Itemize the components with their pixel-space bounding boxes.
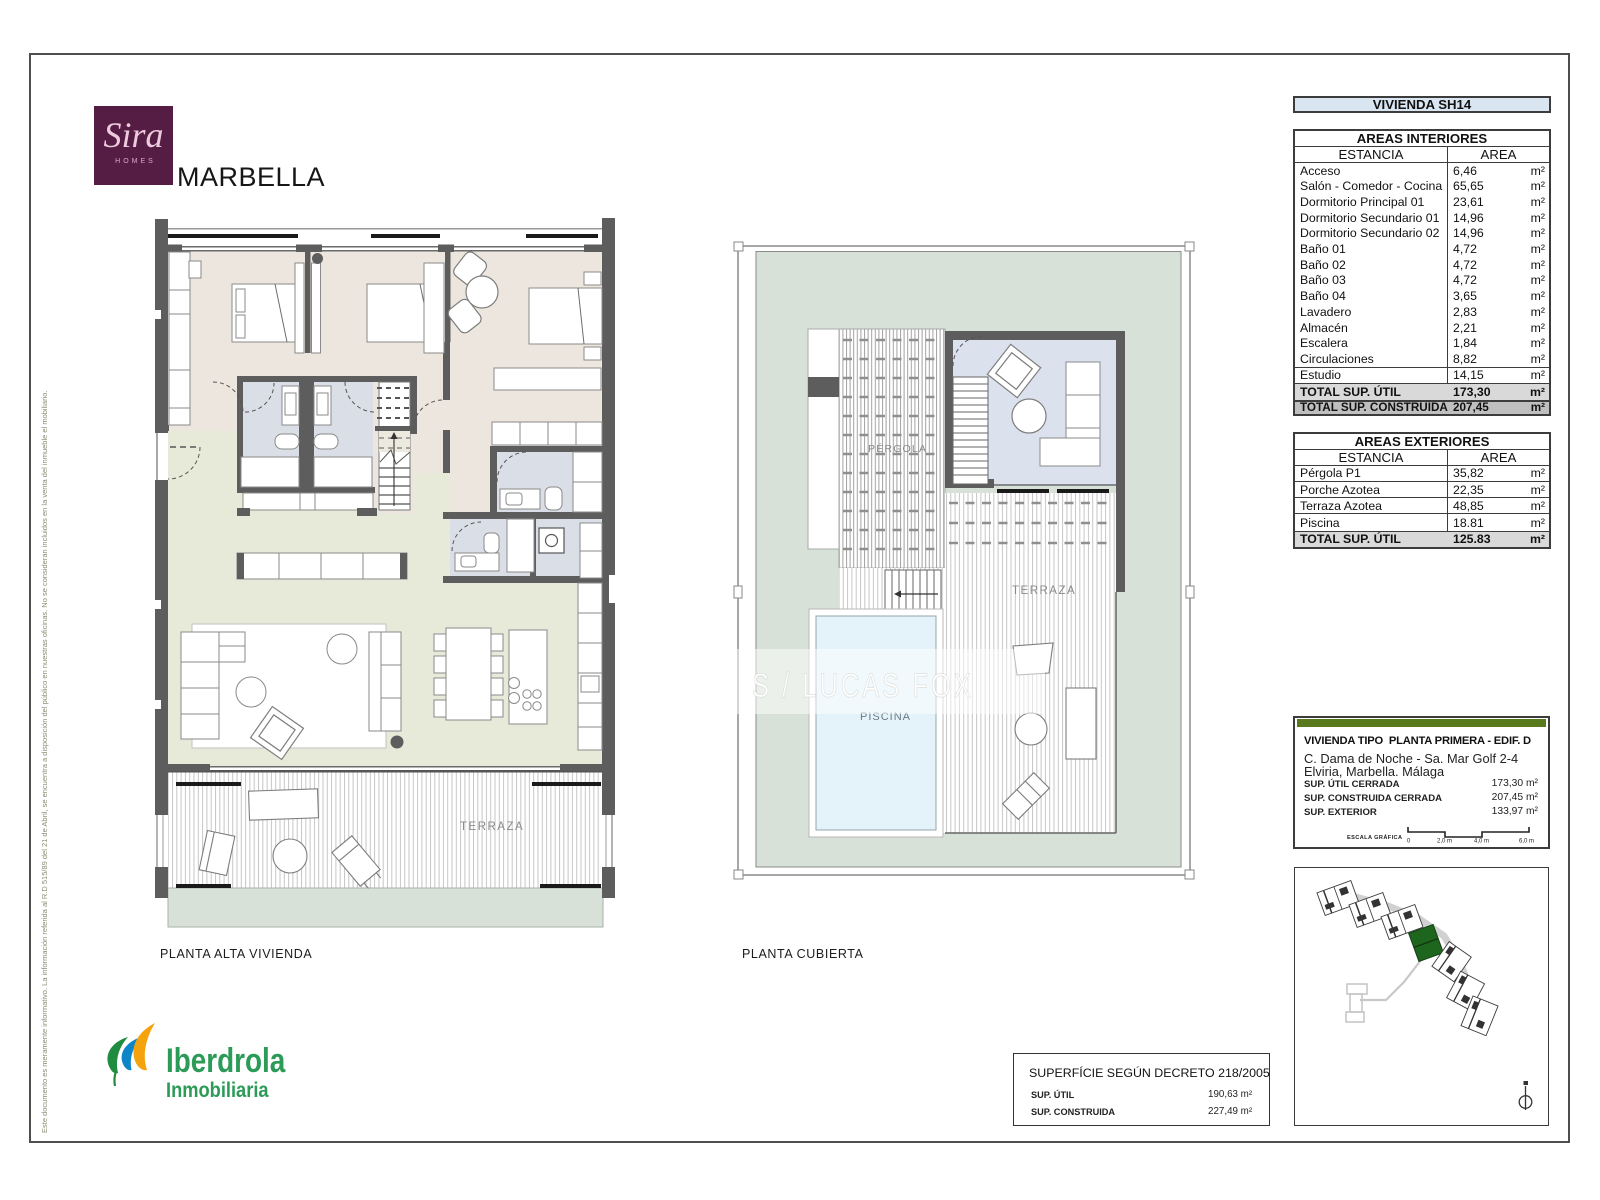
svg-text:2,0 m: 2,0 m	[1437, 839, 1452, 845]
svg-text:0: 0	[1407, 839, 1411, 845]
svg-text:4,0 m: 4,0 m	[1474, 839, 1489, 845]
svg-text:PÉRGOLA: PÉRGOLA	[868, 442, 927, 455]
svg-text:6,0 m: 6,0 m	[1519, 839, 1534, 845]
svg-text:TERRAZA: TERRAZA	[1012, 585, 1076, 597]
svg-text:TERRAZA: TERRAZA	[460, 821, 524, 833]
